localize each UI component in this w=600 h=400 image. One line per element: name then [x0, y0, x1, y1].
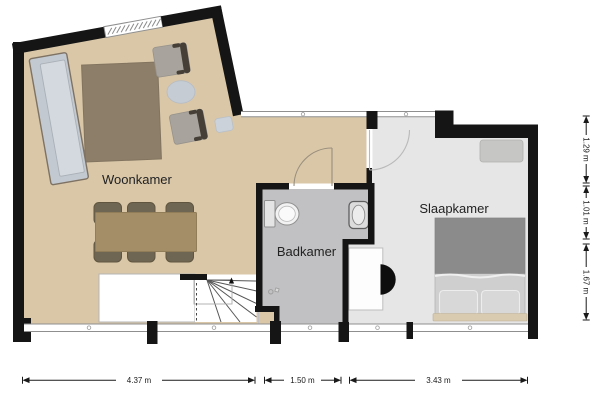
- svg-text:4.37 m: 4.37 m: [127, 376, 152, 385]
- svg-text:3.43 m: 3.43 m: [426, 376, 451, 385]
- svg-text:1.01 m: 1.01 m: [581, 200, 590, 225]
- svg-text:1.50 m: 1.50 m: [290, 376, 315, 385]
- svg-text:1.67 m: 1.67 m: [581, 270, 590, 295]
- svg-text:Slaapkamer: Slaapkamer: [419, 201, 489, 216]
- svg-text:1.29 m: 1.29 m: [581, 137, 590, 162]
- svg-text:Badkamer: Badkamer: [277, 244, 337, 259]
- svg-text:Woonkamer: Woonkamer: [102, 172, 173, 187]
